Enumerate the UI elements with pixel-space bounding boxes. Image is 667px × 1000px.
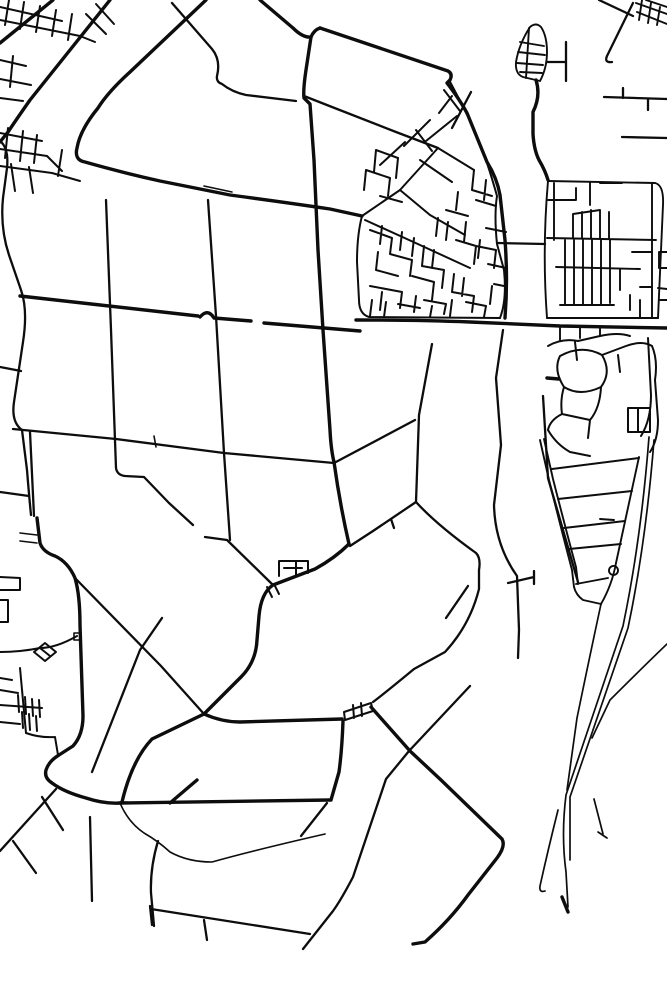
major-roads-path <box>170 780 197 803</box>
motorway-lines-path <box>592 644 667 738</box>
secondary-roads-path <box>92 618 162 772</box>
layer-town-streets <box>0 0 658 755</box>
major-roads-path <box>334 462 349 544</box>
major-roads-path <box>371 707 503 944</box>
map-svg <box>0 0 667 1000</box>
secondary-roads-path <box>205 537 273 585</box>
major-roads-path <box>200 313 251 321</box>
motorway-lines-path <box>570 440 654 860</box>
motorway-lines-path <box>594 799 607 838</box>
major-roads-path <box>320 28 507 318</box>
grid-and-detail-path <box>556 267 640 269</box>
secondary-roads-path <box>13 841 36 873</box>
secondary-roads-path <box>75 578 204 714</box>
major-roads-path <box>547 378 559 379</box>
thin-boundaries-path <box>20 533 37 543</box>
secondary-roads-path <box>0 141 31 515</box>
secondary-roads-path <box>151 909 310 934</box>
town-streets-path <box>0 705 42 708</box>
secondary-roads-path <box>90 817 92 901</box>
secondary-roads-path <box>391 519 394 528</box>
layer-major-roads <box>0 0 667 944</box>
secondary-roads-path <box>301 803 327 836</box>
secondary-roads-path <box>42 797 63 830</box>
secondary-roads-path <box>498 243 545 244</box>
grid-and-detail-path <box>573 210 609 238</box>
major-roads-path <box>356 320 667 328</box>
grid-and-detail-path <box>548 183 622 205</box>
town-streets-path <box>548 430 590 456</box>
grid-and-detail-path <box>552 458 639 584</box>
major-roads-path <box>260 0 320 37</box>
town-streets-path <box>487 163 505 318</box>
major-roads-path <box>122 714 204 802</box>
town-streets-path <box>364 150 402 202</box>
secondary-roads-path <box>373 344 480 702</box>
town-streets-path <box>362 148 438 216</box>
secondary-roads-path <box>151 841 158 926</box>
thin-boundaries-path <box>120 803 325 862</box>
map-root <box>0 0 667 1000</box>
secondary-roads-path <box>0 492 29 496</box>
secondary-roads-path <box>508 571 534 584</box>
layer-motorway-lines <box>540 437 667 907</box>
town-streets-path <box>628 408 650 432</box>
secondary-roads-path <box>599 0 633 62</box>
motorway-lines-path <box>540 810 558 891</box>
major-roads-path <box>76 0 362 216</box>
secondary-roads-path <box>208 200 230 540</box>
major-roads-path <box>533 80 548 180</box>
secondary-roads-path <box>494 330 519 658</box>
secondary-roads-path <box>604 88 667 110</box>
secondary-roads-path <box>446 586 468 618</box>
layer-thin-boundaries <box>20 186 325 862</box>
secondary-roads-path <box>204 920 207 940</box>
major-roads-path <box>120 800 330 803</box>
secondary-roads-path <box>304 96 438 148</box>
grid-and-detail-path <box>545 181 548 318</box>
major-roads-path <box>264 323 360 331</box>
grid-and-detail-path <box>620 252 652 318</box>
town-streets-path <box>370 170 506 314</box>
layer-secondary-roads <box>0 0 667 949</box>
motorway-lines-path <box>567 604 601 790</box>
secondary-roads-path <box>106 200 193 525</box>
secondary-roads-path <box>547 42 566 81</box>
major-roads-path <box>204 714 342 722</box>
grid-and-detail-path <box>636 0 667 25</box>
grid-and-detail-path <box>601 457 639 604</box>
grid-and-detail-path <box>517 28 545 78</box>
grid-and-detail-path <box>560 240 614 305</box>
town-streets-path <box>0 577 20 622</box>
secondary-roads-path <box>13 420 415 463</box>
town-streets-path <box>557 350 606 392</box>
town-streets-path <box>0 128 80 193</box>
major-roads-path <box>37 518 120 803</box>
town-streets-path <box>86 4 114 34</box>
town-streets-path <box>18 695 40 731</box>
town-streets-path <box>0 56 31 101</box>
secondary-roads-path <box>0 789 56 851</box>
major-roads-path <box>204 544 349 714</box>
major-roads-path <box>331 721 343 800</box>
thin-boundaries-path <box>154 436 156 447</box>
secondary-roads-path <box>622 137 667 138</box>
secondary-roads-path <box>172 3 296 101</box>
secondary-roads-path <box>350 502 416 546</box>
town-streets-path <box>344 703 373 720</box>
